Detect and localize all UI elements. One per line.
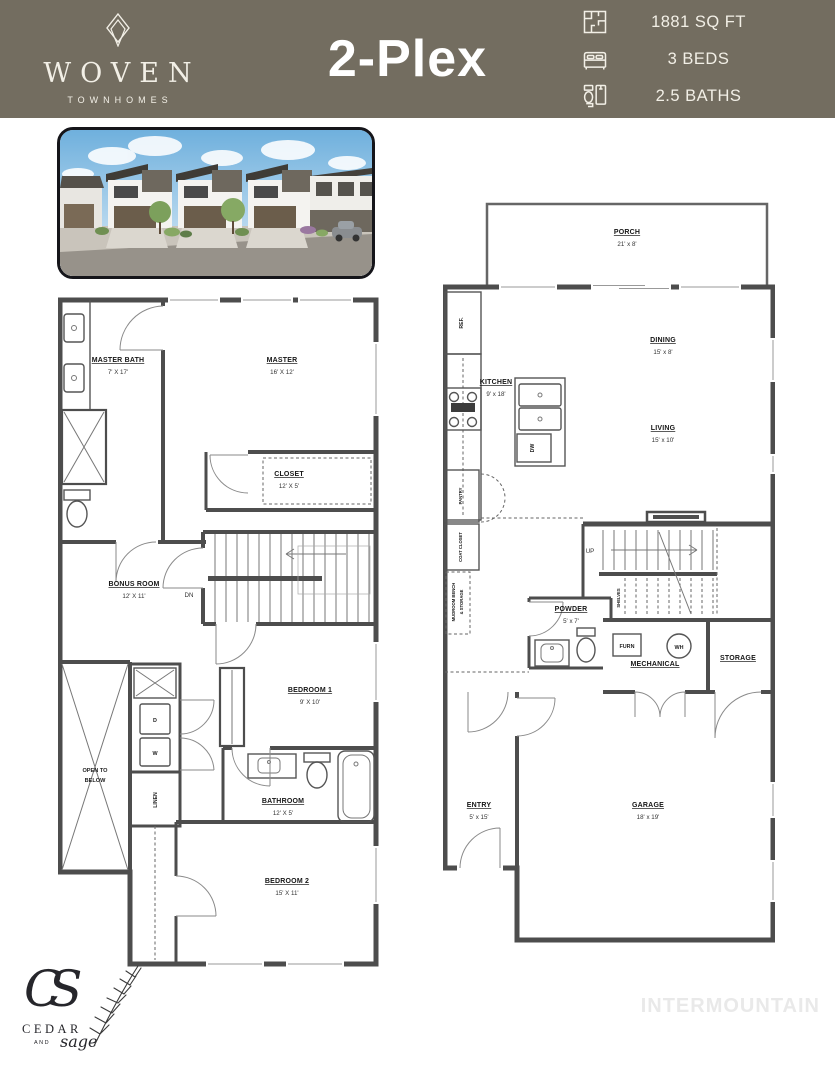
room-label-entry: ENTRY xyxy=(467,802,492,809)
room-dims-dining: 15' x 8' xyxy=(653,349,672,356)
room-label-garage: GARAGE xyxy=(632,802,664,809)
spec-beds: 3 BEDS xyxy=(580,45,777,73)
room-label-bonus: BONUS ROOM xyxy=(109,581,160,588)
spec-beds-label: 3 BEDS xyxy=(620,50,777,69)
room-dims-master: 16' X 12' xyxy=(270,369,294,376)
room-label-closet: CLOSET xyxy=(274,471,304,478)
double-diamond-icon xyxy=(100,13,136,52)
pantry-label: PANTRY xyxy=(458,487,463,504)
open-below-label-1: OPEN TO xyxy=(82,768,108,774)
room-label-powder: POWDER xyxy=(555,606,588,613)
room-dims-garage: 18' x 19' xyxy=(637,814,660,821)
stairs-up-label: UP xyxy=(586,548,595,555)
room-dims-porch: 21' x 8' xyxy=(617,241,636,248)
builder-initials: CS xyxy=(24,964,69,1014)
spec-sqft-label: 1881 SQ FT xyxy=(620,13,777,32)
stairs-dn-label: DN xyxy=(185,592,194,599)
brand-name: WOVEN xyxy=(34,58,200,89)
builder-logo: CS CEDAR AND sage xyxy=(22,966,172,1072)
mudroom-label-2: & STORAGE xyxy=(459,589,464,614)
furnace-label: FURN xyxy=(620,644,635,650)
room-dims-bathroom: 12' X 5' xyxy=(273,810,293,817)
room-dims-living: 15' x 10' xyxy=(652,437,675,444)
room-dims-bedroom1: 9' X 10' xyxy=(300,699,320,706)
mudroom-label-1: MUDROOM BENCH xyxy=(451,583,456,622)
builder-name-and: AND xyxy=(34,1040,50,1046)
room-label-kitchen: KITCHEN xyxy=(480,379,513,386)
dishwasher-label: DW xyxy=(530,444,536,453)
room-dims-powder: 5' x 7' xyxy=(563,618,579,625)
room-label-master: MASTER xyxy=(267,357,298,364)
room-label-bedroom1: BEDROOM 1 xyxy=(288,687,332,694)
room-label-porch: PORCH xyxy=(614,229,640,236)
ref-label: REF. xyxy=(459,317,465,329)
water-heater-label: WH xyxy=(675,645,684,651)
fern-icon xyxy=(84,958,146,1059)
flyer-page: WOVEN TOWNHOMES 2-Plex 1881 SQ FT xyxy=(0,0,835,1080)
shelves-label: SHELVES xyxy=(616,588,621,607)
room-label-master-bath: MASTER BATH xyxy=(92,357,145,364)
bath-icon xyxy=(580,82,620,110)
room-label-bedroom2: BEDROOM 2 xyxy=(265,878,309,885)
room-dims-kitchen: 9' x 18' xyxy=(486,391,505,398)
open-below-label-2: BELOW xyxy=(85,778,107,784)
spec-baths-label: 2.5 BATHS xyxy=(620,87,777,106)
plan-title: 2-Plex xyxy=(235,29,580,89)
upper-floor-plan: MASTER BATH 7' X 17' MASTER 16' X 12' CL… xyxy=(58,292,380,967)
room-label-mechanical: MECHANICAL xyxy=(630,661,680,668)
brand-logo: WOVEN TOWNHOMES xyxy=(0,13,235,105)
exterior-rendering-image xyxy=(57,127,375,279)
background-house-left xyxy=(60,176,104,228)
room-label-bathroom: BATHROOM xyxy=(262,798,304,805)
room-dims-bonus: 12' X 11' xyxy=(122,593,145,600)
spec-list: 1881 SQ FT 3 BEDS xyxy=(580,8,835,110)
spec-sqft: 1881 SQ FT xyxy=(580,8,777,36)
room-dims-entry: 5' x 15' xyxy=(469,814,488,821)
room-dims-master-bath: 7' X 17' xyxy=(108,369,128,376)
linen-label: LINEN xyxy=(153,792,159,808)
spec-baths: 2.5 BATHS xyxy=(580,82,777,110)
watermark: INTERMOUNTAIN xyxy=(641,995,820,1018)
brand-tagline: TOWNHOMES xyxy=(62,95,172,105)
floorplan-icon xyxy=(580,8,620,36)
room-label-storage: STORAGE xyxy=(720,655,756,662)
room-label-living: LIVING xyxy=(651,425,676,432)
main-floor-plan: PORCH 21' x 8' DINING 15' x 8' KITCHEN 9… xyxy=(443,202,775,952)
coat-closet-label: COAT CLOSET xyxy=(458,532,463,562)
dryer-label: D xyxy=(153,718,157,724)
header-band: WOVEN TOWNHOMES 2-Plex 1881 SQ FT xyxy=(0,0,835,118)
bed-icon xyxy=(580,45,620,73)
room-label-dining: DINING xyxy=(650,337,676,344)
room-dims-bedroom2: 15' X 11' xyxy=(275,890,298,897)
room-dims-closet: 12' X 5' xyxy=(279,483,299,490)
